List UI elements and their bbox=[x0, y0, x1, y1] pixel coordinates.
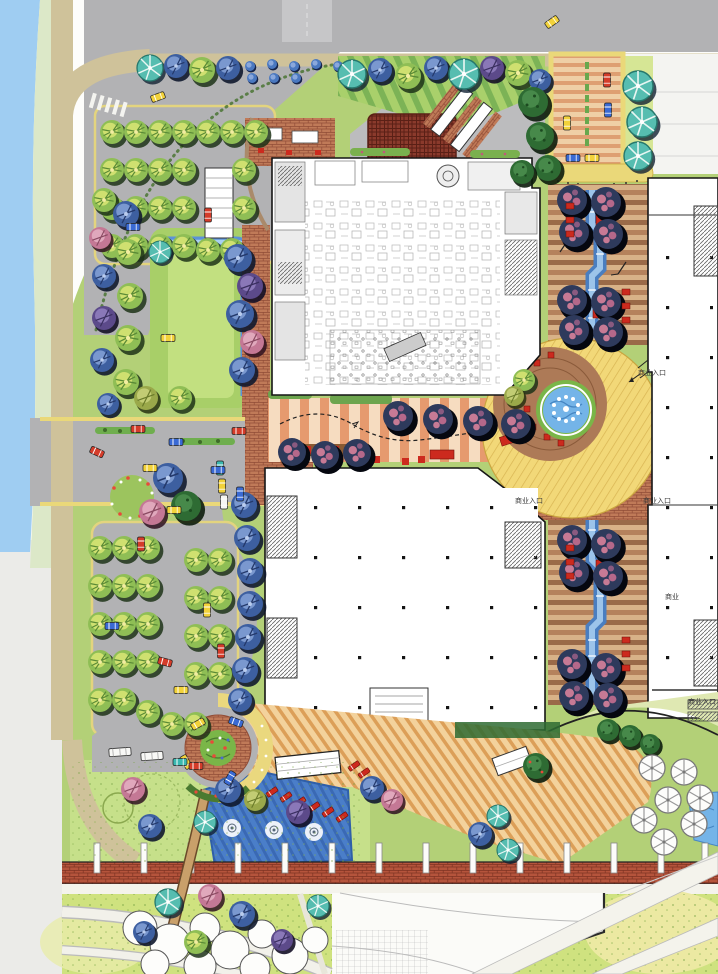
north-building bbox=[272, 158, 540, 395]
label-commercial: 商业 bbox=[665, 592, 679, 601]
fountain-pool bbox=[536, 380, 596, 440]
label-entrance-east: 商业入口 bbox=[688, 697, 716, 706]
label-entrance-sw: 商业入口 bbox=[515, 496, 543, 505]
side-road-stub bbox=[282, 0, 332, 42]
canopy-structure-nw bbox=[205, 168, 233, 238]
label-entrance-se: 商业入口 bbox=[643, 496, 671, 505]
site-plan-rendering: 商业入口 商业入口 商业入口 商业入口 商业 bbox=[0, 0, 718, 974]
lakeside-colonnade bbox=[62, 862, 718, 894]
label-entrance-ne: 商业入口 bbox=[638, 368, 666, 377]
south-building bbox=[265, 468, 545, 731]
